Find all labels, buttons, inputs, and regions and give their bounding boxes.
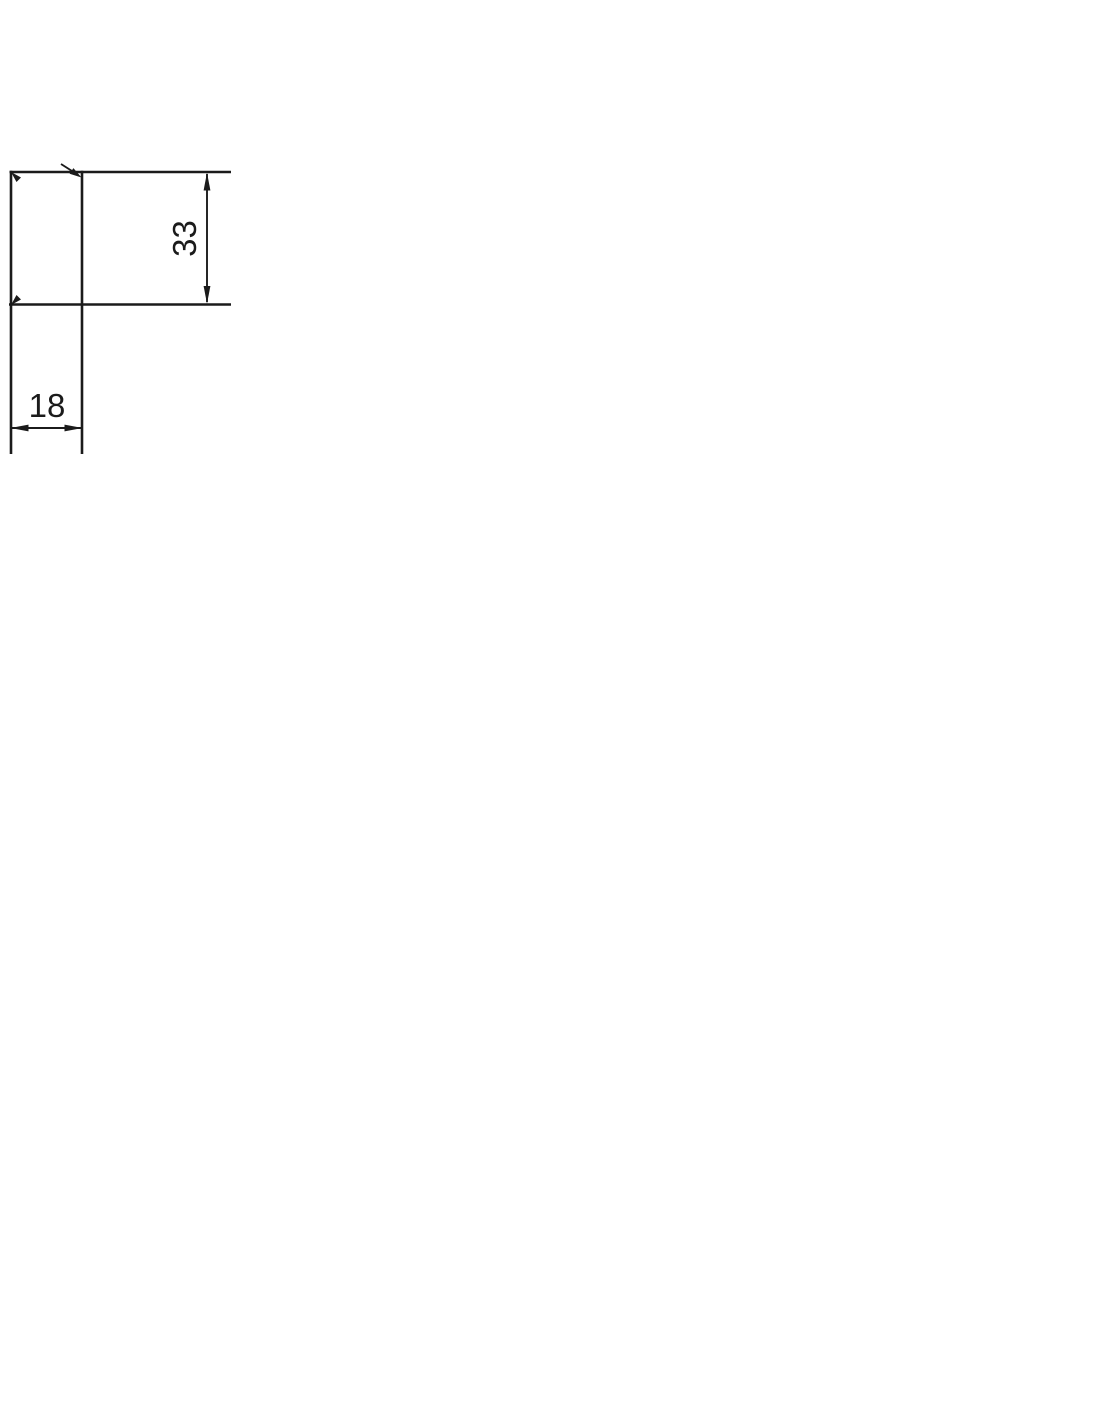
drawing-area: 33 18 [0,0,1100,1422]
arrowhead-up-icon [204,173,211,191]
corner-arrowhead-nw-icon [11,172,21,182]
arrowhead-right-icon [65,425,83,432]
arrowhead-left-icon [11,425,29,432]
technical-drawing: 33 18 [0,0,1100,1422]
corner-leader-line [61,164,72,171]
arrowhead-down-icon [204,286,211,304]
dimension-label-vertical: 33 [166,220,203,257]
dimension-label-horizontal: 18 [29,387,66,424]
